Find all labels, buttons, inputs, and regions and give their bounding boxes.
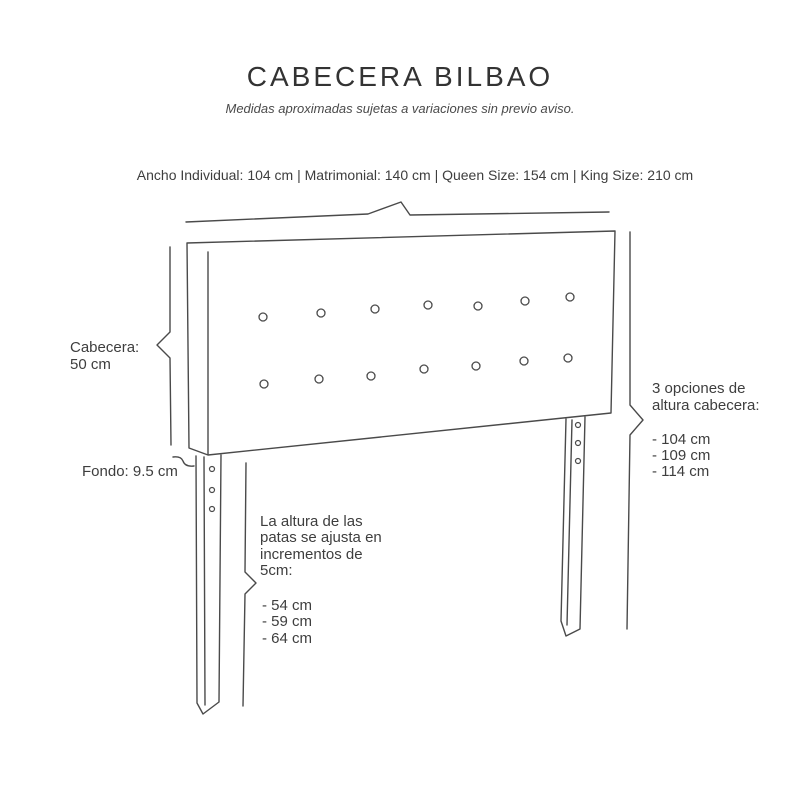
headboard-spec-sheet: CABECERA BILBAO Medidas aproximadas suje… <box>0 0 800 800</box>
tufting-button <box>317 309 325 317</box>
tufting-button <box>566 293 574 301</box>
right-leg-outline <box>561 417 585 636</box>
tufting-button <box>259 313 267 321</box>
total-height-bracket <box>627 232 643 629</box>
tufting-button <box>371 305 379 313</box>
left-leg-outline <box>196 455 221 714</box>
tufting-button <box>315 375 323 383</box>
width-dimension-line <box>186 202 609 222</box>
headboard-outline <box>187 231 615 455</box>
tufting-button <box>367 372 375 380</box>
tufting-button <box>424 301 432 309</box>
leg-hole <box>576 441 581 446</box>
left-leg-edge <box>204 457 205 705</box>
tufting-button <box>520 357 528 365</box>
tufting-buttons <box>259 293 574 388</box>
leg-hole <box>210 507 215 512</box>
right-leg-edge <box>567 420 572 625</box>
leg-hole <box>210 467 215 472</box>
tufting-button <box>521 297 529 305</box>
tufting-button <box>420 365 428 373</box>
tufting-button <box>474 302 482 310</box>
tufting-button <box>472 362 480 370</box>
headboard-line-drawing <box>0 0 800 800</box>
tufting-button <box>260 380 268 388</box>
leg-height-bracket <box>243 463 256 706</box>
headboard-height-bracket <box>157 247 171 445</box>
tufting-button <box>564 354 572 362</box>
depth-leader-line <box>173 457 194 466</box>
leg-hole <box>576 459 581 464</box>
leg-hole <box>210 488 215 493</box>
leg-hole <box>576 423 581 428</box>
